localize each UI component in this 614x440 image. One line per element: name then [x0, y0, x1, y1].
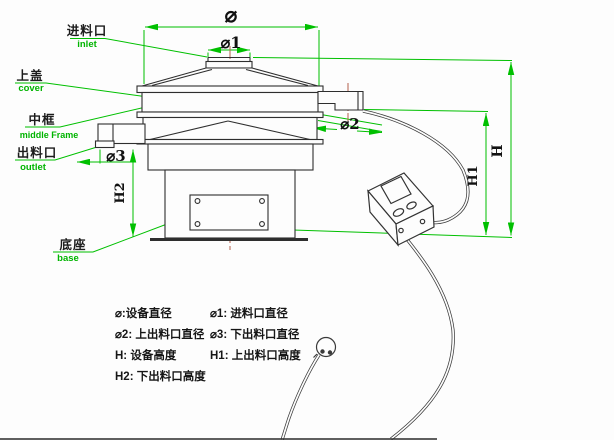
- outlet-label-en: outlet: [20, 162, 47, 173]
- outlet-label-zh: 出料口: [17, 145, 58, 160]
- cover-label-zh: 上盖: [16, 68, 43, 83]
- middle-frame-band: [137, 112, 323, 118]
- phi-label: ⌀: [225, 2, 238, 27]
- h-top-reference-line: [253, 58, 512, 61]
- inlet-label-en: inlet: [77, 39, 97, 50]
- plug-cable: [282, 355, 319, 440]
- top-cover: [142, 68, 318, 86]
- legend-item-phi: ⌀:设备直径: [115, 306, 172, 320]
- upper-frame: [142, 93, 318, 113]
- legend-item-h1: H1: 上出料口高度: [210, 348, 301, 362]
- base-label-en: base: [57, 253, 79, 264]
- phi1-label: ⌀1: [221, 33, 242, 52]
- bolt-hole: [195, 222, 200, 227]
- middle-frame-label-en: middle Frame: [20, 130, 79, 140]
- legend-item-phi2: ⌀2: 上出料口直径: [115, 327, 205, 341]
- h1-label: H1: [466, 165, 481, 186]
- controller-cable-port: [399, 228, 403, 232]
- plug-pin: [321, 350, 324, 353]
- base-label-zh: 底座: [59, 237, 86, 252]
- controller-cable-port: [420, 219, 424, 223]
- part-labels: 进料口 inlet 上盖 cover 中框 middle Frame 出料口 o…: [16, 23, 107, 264]
- legend-item-h: H: 设备高度: [115, 348, 177, 362]
- h-label: H: [490, 144, 506, 157]
- sieve-machine: [96, 58, 364, 240]
- clamp-band-bottom: [137, 140, 323, 145]
- legend-item-phi3: ⌀3: 下出料口直径: [210, 327, 300, 341]
- diagram-page: ⌀ ⌀1 ⌀2 ⌀3 H H1 H2 进料口 inlet 上盖 cover 中框…: [0, 0, 614, 440]
- middle-frame-label-zh: 中框: [28, 112, 55, 127]
- sieve-dimension-diagram: ⌀ ⌀1 ⌀2 ⌀3 H H1 H2 进料口 inlet 上盖 cover 中框…: [0, 0, 614, 440]
- bowl-section: [148, 144, 313, 170]
- motor-plate: [190, 195, 268, 230]
- h2-label: H2: [113, 182, 128, 203]
- legend-item-h2: H2: 下出料口高度: [115, 369, 206, 383]
- bolt-hole: [260, 199, 265, 204]
- clamp-band-top: [137, 86, 323, 93]
- bolt-hole: [195, 199, 200, 204]
- legend: ⌀:设备直径 ⌀1: 进料口直径 ⌀2: 上出料口直径 ⌀3: 下出料口直径 H…: [115, 306, 301, 383]
- plug-head: [317, 338, 336, 357]
- upper-outlet-spout: [318, 92, 363, 111]
- inlet-label-zh: 进料口: [67, 23, 108, 38]
- power-plug: [314, 338, 336, 358]
- plug-pin: [328, 351, 331, 354]
- legend-item-phi1: ⌀1: 进料口直径: [210, 306, 288, 320]
- phi3-label: ⌀3: [106, 147, 125, 165]
- h1-top-reference-line: [364, 110, 488, 112]
- cover-label-en: cover: [18, 83, 44, 94]
- inlet-flange: [206, 62, 252, 69]
- screen-section: [143, 118, 317, 140]
- bolt-hole: [260, 222, 265, 227]
- controller-power-cable: [391, 232, 453, 439]
- phi2-label: ⌀2: [340, 115, 359, 133]
